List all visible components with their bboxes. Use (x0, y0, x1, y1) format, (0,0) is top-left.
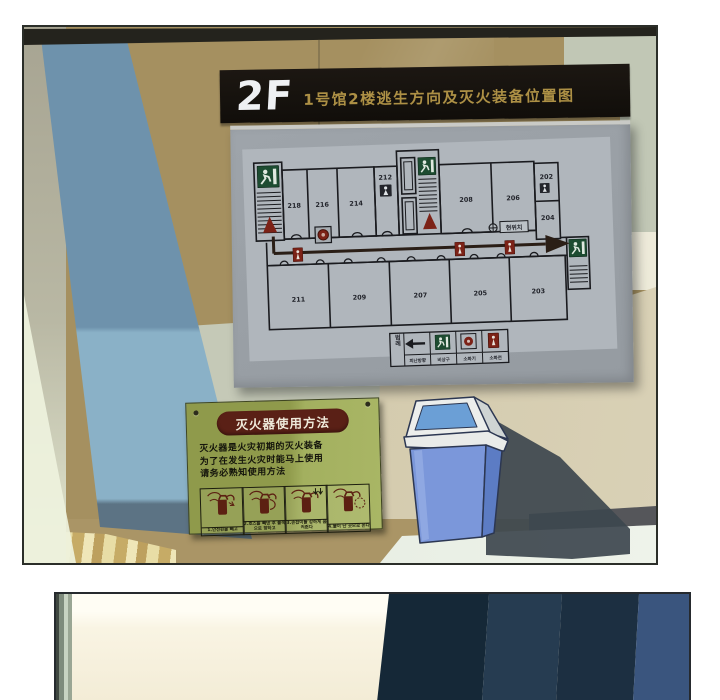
exit-sign-icon (569, 239, 588, 258)
room-number: 202 (539, 173, 553, 181)
trash-body-side (482, 445, 502, 537)
trash-lid-flap (415, 403, 477, 430)
comic-page: 2F 1号馆2楼逃生方向及灭火装备位置图 (0, 0, 720, 700)
restroom-icon (540, 183, 550, 193)
extinguisher-drawing (243, 487, 285, 518)
room-number: 205 (473, 289, 487, 297)
restroom-icon (380, 184, 392, 196)
room-number: 211 (292, 295, 306, 303)
panel-doorway (54, 592, 691, 700)
hydrant-cabinet-icon (293, 248, 303, 262)
sign-title-capsule: 灭火器使用方法 (216, 408, 349, 436)
fire-extinguisher-icon (315, 227, 332, 244)
extinguisher-instructions-sign: 灭火器使用方法 灭火器是火灾初期的灭火装备 为了在发生火灾时能马上使用 请务必熟… (185, 397, 383, 534)
room-number: 214 (349, 199, 363, 207)
room-number: 203 (531, 287, 545, 295)
trash-can (396, 385, 521, 555)
legend-title: 범례 (393, 333, 400, 347)
panel-hallway: 2F 1号馆2楼逃生方向及灭火装备位置图 (22, 25, 658, 565)
step-panel-1: 1.안전핀을 빼고 (200, 487, 245, 536)
map-sign-title: 1号馆2楼逃生方向及灭火装备位置图 (303, 85, 575, 110)
instruction-steps: 1.안전핀을 빼고 2.호스를 빼낸 후 불쪽으로 향하고 3.손잡이를 강하게… (200, 483, 371, 536)
svg-text:현위치: 현위치 (506, 223, 523, 232)
hydrant-cabinet-icon (488, 333, 499, 348)
room-number: 218 (287, 202, 301, 210)
step-panel-4: 4.불이 난 곳으로 쏜다 (326, 483, 371, 532)
exit-sign-icon (257, 165, 280, 188)
map-sign-header: 2F 1号馆2楼逃生方向及灭火装备位置图 (220, 64, 631, 123)
exit-sign-icon (418, 157, 437, 176)
room-number: 209 (353, 293, 367, 301)
room-number: 207 (413, 291, 427, 299)
floor-plan-board: 현위치 218 216 214 212 208 206 202 204 211 … (230, 120, 634, 388)
sign-title: 灭火器使用方法 (235, 411, 330, 433)
hydrant-cabinet-icon (455, 242, 465, 256)
plan-legend: 범례 피난방향 비상구 (390, 329, 509, 366)
step-panel-3: 3.손잡이를 강하게 움켜쥔다 (284, 485, 329, 534)
floor-label: 2F (235, 76, 294, 117)
floor-plan-drawing: 현위치 218 216 214 212 208 206 202 204 211 … (230, 124, 634, 388)
room-number: 216 (315, 201, 329, 209)
sign-body-text: 灭火器是火灾初期的灭火装备 为了在发生火灾时能马上使用 请务必熟知使用方法 (199, 438, 380, 481)
screw-icon (193, 410, 198, 415)
step-panel-2: 2.호스를 빼낸 후 불쪽으로 향하고 (242, 486, 287, 535)
extinguisher-drawing (201, 488, 243, 519)
screw-icon (365, 402, 370, 407)
extinguisher-drawing (327, 484, 369, 515)
exit-sign-icon (435, 334, 451, 350)
room-number: 206 (506, 194, 520, 202)
room-number: 208 (459, 196, 473, 204)
door-frame-edge (56, 594, 72, 700)
extinguisher-drawing (285, 486, 327, 517)
room-number: 204 (541, 214, 555, 222)
fire-extinguisher-icon (461, 334, 477, 350)
room-number: 212 (378, 173, 392, 181)
hydrant-cabinet-icon (505, 240, 515, 254)
